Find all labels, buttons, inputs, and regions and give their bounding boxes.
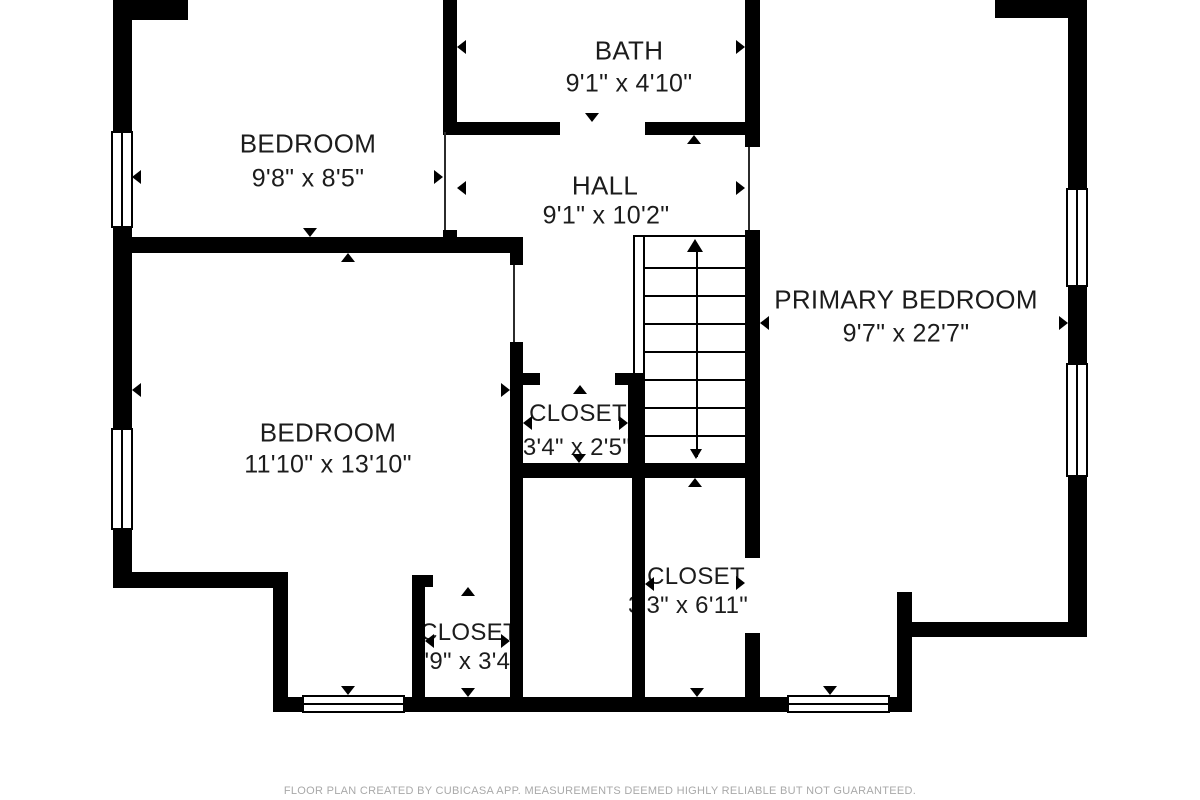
wall-segment [912,622,1087,637]
window [111,428,133,530]
room-dims-primary-bedroom: 9'7" x 22'7" [843,320,970,349]
room-label-bedroom-top: BEDROOM [240,129,376,160]
wall-segment [113,237,523,253]
room-dims-bedroom-top: 9'8" x 8'5" [252,165,365,194]
wall-segment [443,230,457,253]
room-label-hall: HALL [572,171,638,202]
wall-segment [645,122,760,135]
dimension-arrow-icon [645,577,654,591]
wall-segment [113,530,132,588]
wall-segment [510,237,523,265]
wall-segment [113,228,132,428]
window-pane-line [1076,190,1078,285]
wall-segment [443,0,457,132]
wall-segment [443,122,560,135]
dimension-arrow-icon [573,385,587,394]
door-leaf [444,132,446,230]
window [1066,363,1088,477]
window [787,695,890,713]
window [1066,188,1088,287]
dimension-arrow-icon [585,113,599,122]
window-pane-line [304,703,403,705]
dimension-arrow-icon [132,383,141,397]
floor-plan: BATH 9'1" x 4'10" BEDROOM 9'8" x 8'5" HA… [0,0,1200,800]
window-pane-line [121,133,123,226]
window-pane-line [121,430,123,528]
dimension-arrow-icon [688,478,702,487]
dimension-arrow-icon [434,170,443,184]
dimension-arrow-icon [690,688,704,697]
wall-segment [615,373,643,385]
room-dims-hall: 9'1" x 10'2" [543,202,670,231]
dimension-arrow-icon [132,170,141,184]
room-label-closet-hall: CLOSET [529,400,627,428]
room-label-bath: BATH [595,36,664,67]
door-leaf [513,265,515,342]
wall-segment [510,342,523,712]
wall-segment [745,0,760,147]
dimension-arrow-icon [461,587,475,596]
wall-segment [1068,477,1087,637]
dimension-arrow-icon [1059,316,1068,330]
dimension-arrow-icon [736,181,745,195]
room-label-bedroom-left: BEDROOM [260,418,396,449]
dimension-arrow-icon [457,40,466,54]
stairs-direction-arrow [696,247,698,457]
dimension-arrow-icon [303,228,317,237]
room-label-closet-lower: CLOSET [647,563,745,591]
wall-segment [1068,287,1087,363]
footer-disclaimer: FLOOR PLAN CREATED BY CUBICASA APP. MEAS… [0,785,1200,797]
wall-segment [412,587,425,712]
window [302,695,405,713]
dimension-arrow-icon [572,454,586,463]
wall-segment [412,575,433,587]
dimension-arrow-icon [461,688,475,697]
stairs-direction-arrow-up-icon [687,239,703,252]
room-dims-closet-entry: 2'9" x 3'4" [411,648,519,676]
stairs-direction-arrow-down-icon [690,449,702,459]
wall-segment [113,572,288,588]
dimension-arrow-icon [501,383,510,397]
room-dims-bedroom-left: 11'10" x 13'10" [244,451,412,480]
dimension-arrow-icon [736,40,745,54]
door-leaf [748,147,750,230]
window [111,131,133,228]
dimension-arrow-icon [341,686,355,695]
dimension-arrow-icon [760,316,769,330]
dimension-arrow-icon [341,253,355,262]
dimension-arrow-icon [457,181,466,195]
wall-segment [632,478,645,697]
dimension-arrow-icon [425,634,434,648]
dimension-arrow-icon [687,135,701,144]
wall-segment [745,230,760,558]
dimension-arrow-icon [736,576,745,590]
wall-segment [628,385,643,463]
wall-segment [113,0,132,131]
wall-segment [745,633,760,712]
wall-segment [273,572,288,712]
dimension-arrow-icon [523,416,532,430]
dimension-arrow-icon [619,416,628,430]
wall-segment [897,592,912,712]
room-dims-closet-lower: 3'3" x 6'11" [628,592,748,620]
dimension-arrow-icon [823,686,837,695]
wall-segment [995,0,1087,18]
dimension-arrow-icon [501,634,510,648]
wall-segment [510,463,760,478]
room-label-primary-bedroom: PRIMARY BEDROOM [774,285,1038,316]
window-pane-line [789,703,888,705]
room-dims-bath: 9'1" x 4'10" [566,70,693,99]
staircase [633,235,748,463]
window-pane-line [1076,365,1078,475]
wall-segment [1068,18,1087,188]
